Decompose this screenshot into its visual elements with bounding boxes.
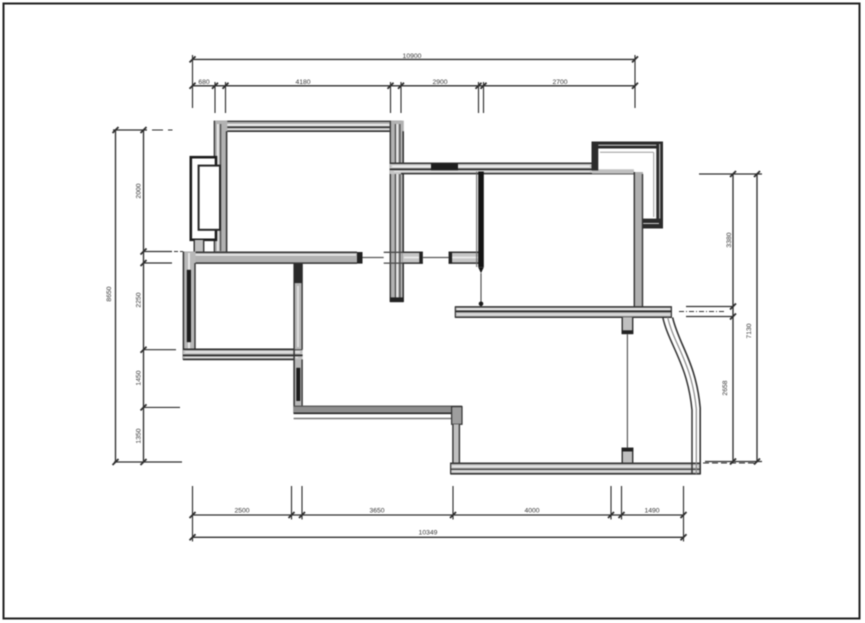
svg-text:2658: 2658 [722, 380, 729, 395]
svg-text:2250: 2250 [136, 292, 143, 307]
svg-text:1350: 1350 [136, 428, 143, 443]
svg-text:680: 680 [198, 79, 210, 86]
svg-text:10900: 10900 [403, 53, 422, 60]
svg-text:2500: 2500 [234, 507, 249, 514]
svg-text:2900: 2900 [432, 79, 447, 86]
svg-text:1450: 1450 [136, 370, 143, 385]
svg-text:3380: 3380 [726, 232, 733, 247]
svg-text:2700: 2700 [552, 79, 567, 86]
svg-text:7130: 7130 [746, 323, 753, 338]
svg-text:3650: 3650 [369, 507, 384, 514]
svg-text:1490: 1490 [644, 507, 659, 514]
svg-text:4000: 4000 [524, 507, 539, 514]
svg-text:4180: 4180 [295, 79, 310, 86]
svg-text:10349: 10349 [419, 529, 438, 536]
svg-text:2000: 2000 [136, 183, 143, 198]
svg-text:8650: 8650 [106, 286, 113, 301]
